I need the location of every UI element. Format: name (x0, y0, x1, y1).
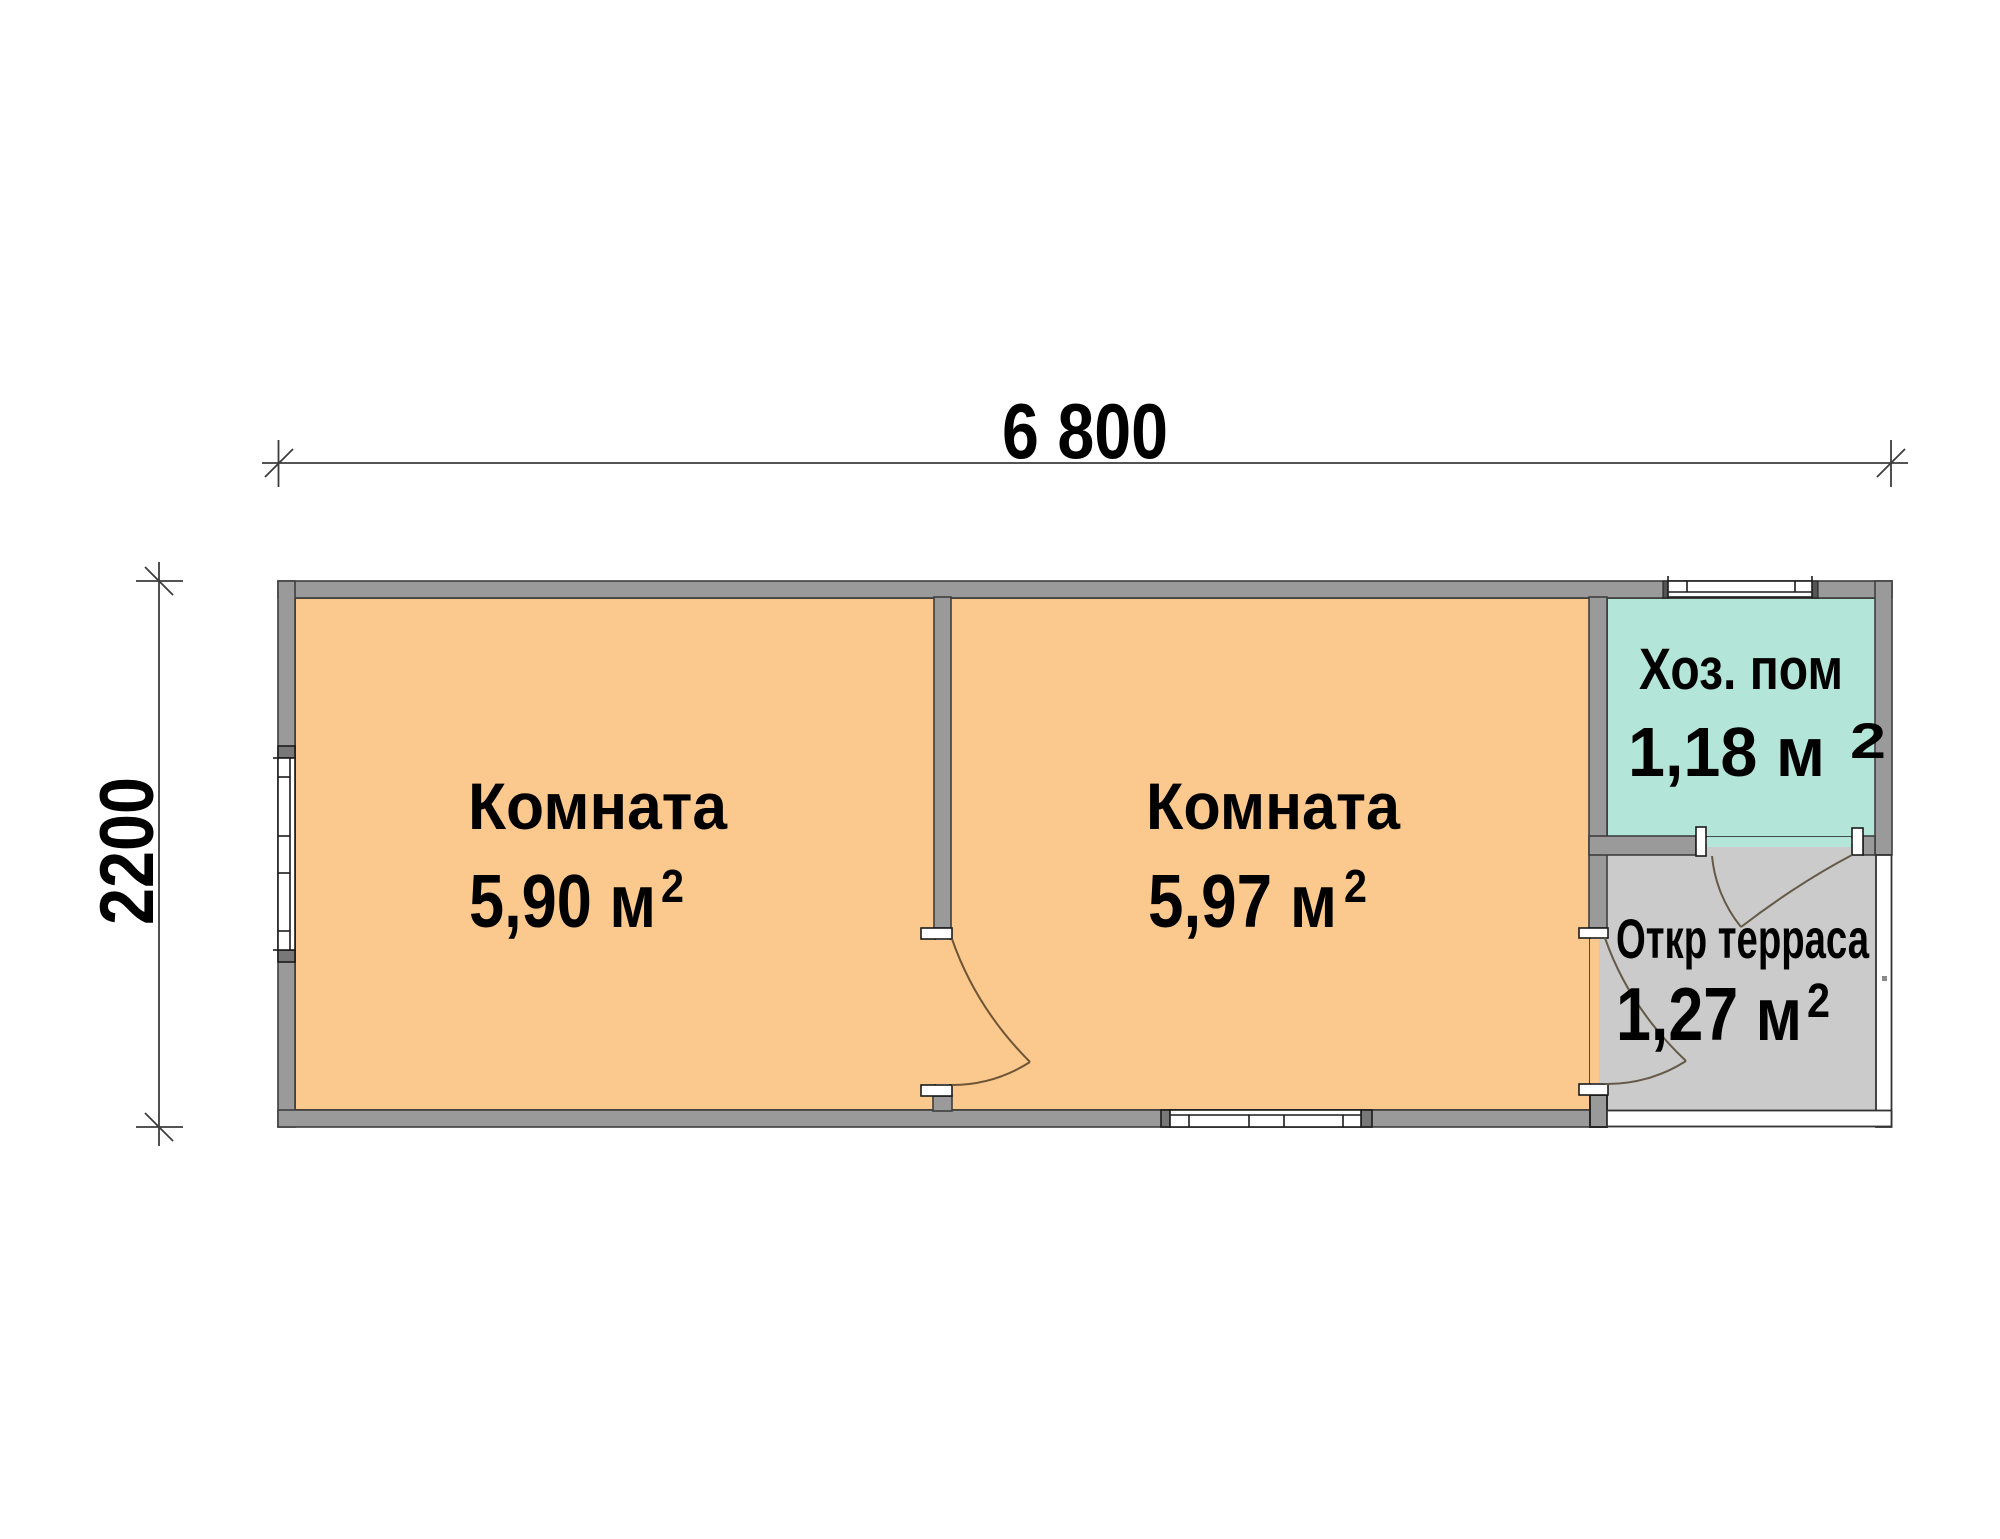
svg-text:2: 2 (1850, 713, 1886, 769)
svg-text:Откр терраса: Откр терраса (1616, 907, 1870, 970)
svg-text:2: 2 (1344, 860, 1367, 912)
svg-text:1,18 м: 1,18 м (1628, 713, 1825, 791)
svg-text:5,97 м: 5,97 м (1148, 859, 1337, 943)
svg-text:2: 2 (661, 860, 684, 912)
svg-text:2200: 2200 (85, 777, 170, 925)
svg-text:Комната: Комната (468, 769, 728, 843)
svg-text:Комната: Комната (1146, 769, 1401, 843)
svg-text:Хоз. пом: Хоз. пом (1639, 637, 1843, 702)
svg-text:1,27 м: 1,27 м (1616, 972, 1802, 1056)
svg-text:5,90 м: 5,90 м (469, 859, 656, 943)
svg-text:2: 2 (1807, 975, 1830, 1028)
svg-text:6 800: 6 800 (1002, 387, 1168, 475)
